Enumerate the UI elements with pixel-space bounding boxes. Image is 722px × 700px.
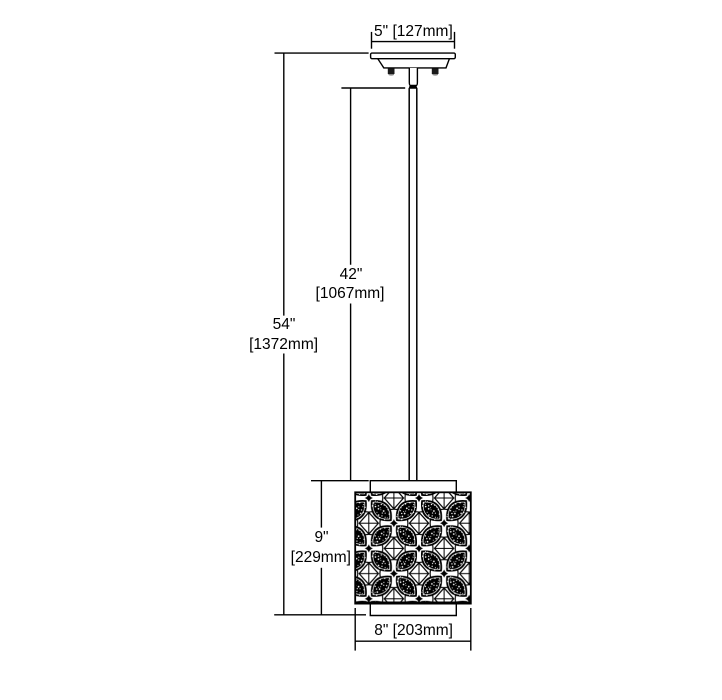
svg-text:8" [203mm]: 8" [203mm] [374, 622, 453, 639]
svg-text:[1067mm]: [1067mm] [316, 285, 385, 302]
svg-text:[229mm]: [229mm] [291, 549, 351, 566]
svg-text:54": 54" [273, 316, 296, 333]
svg-text:42": 42" [340, 266, 363, 283]
svg-text:9": 9" [314, 529, 328, 546]
svg-text:[1372mm]: [1372mm] [249, 336, 318, 353]
svg-text:5" [127mm]: 5" [127mm] [374, 23, 453, 40]
